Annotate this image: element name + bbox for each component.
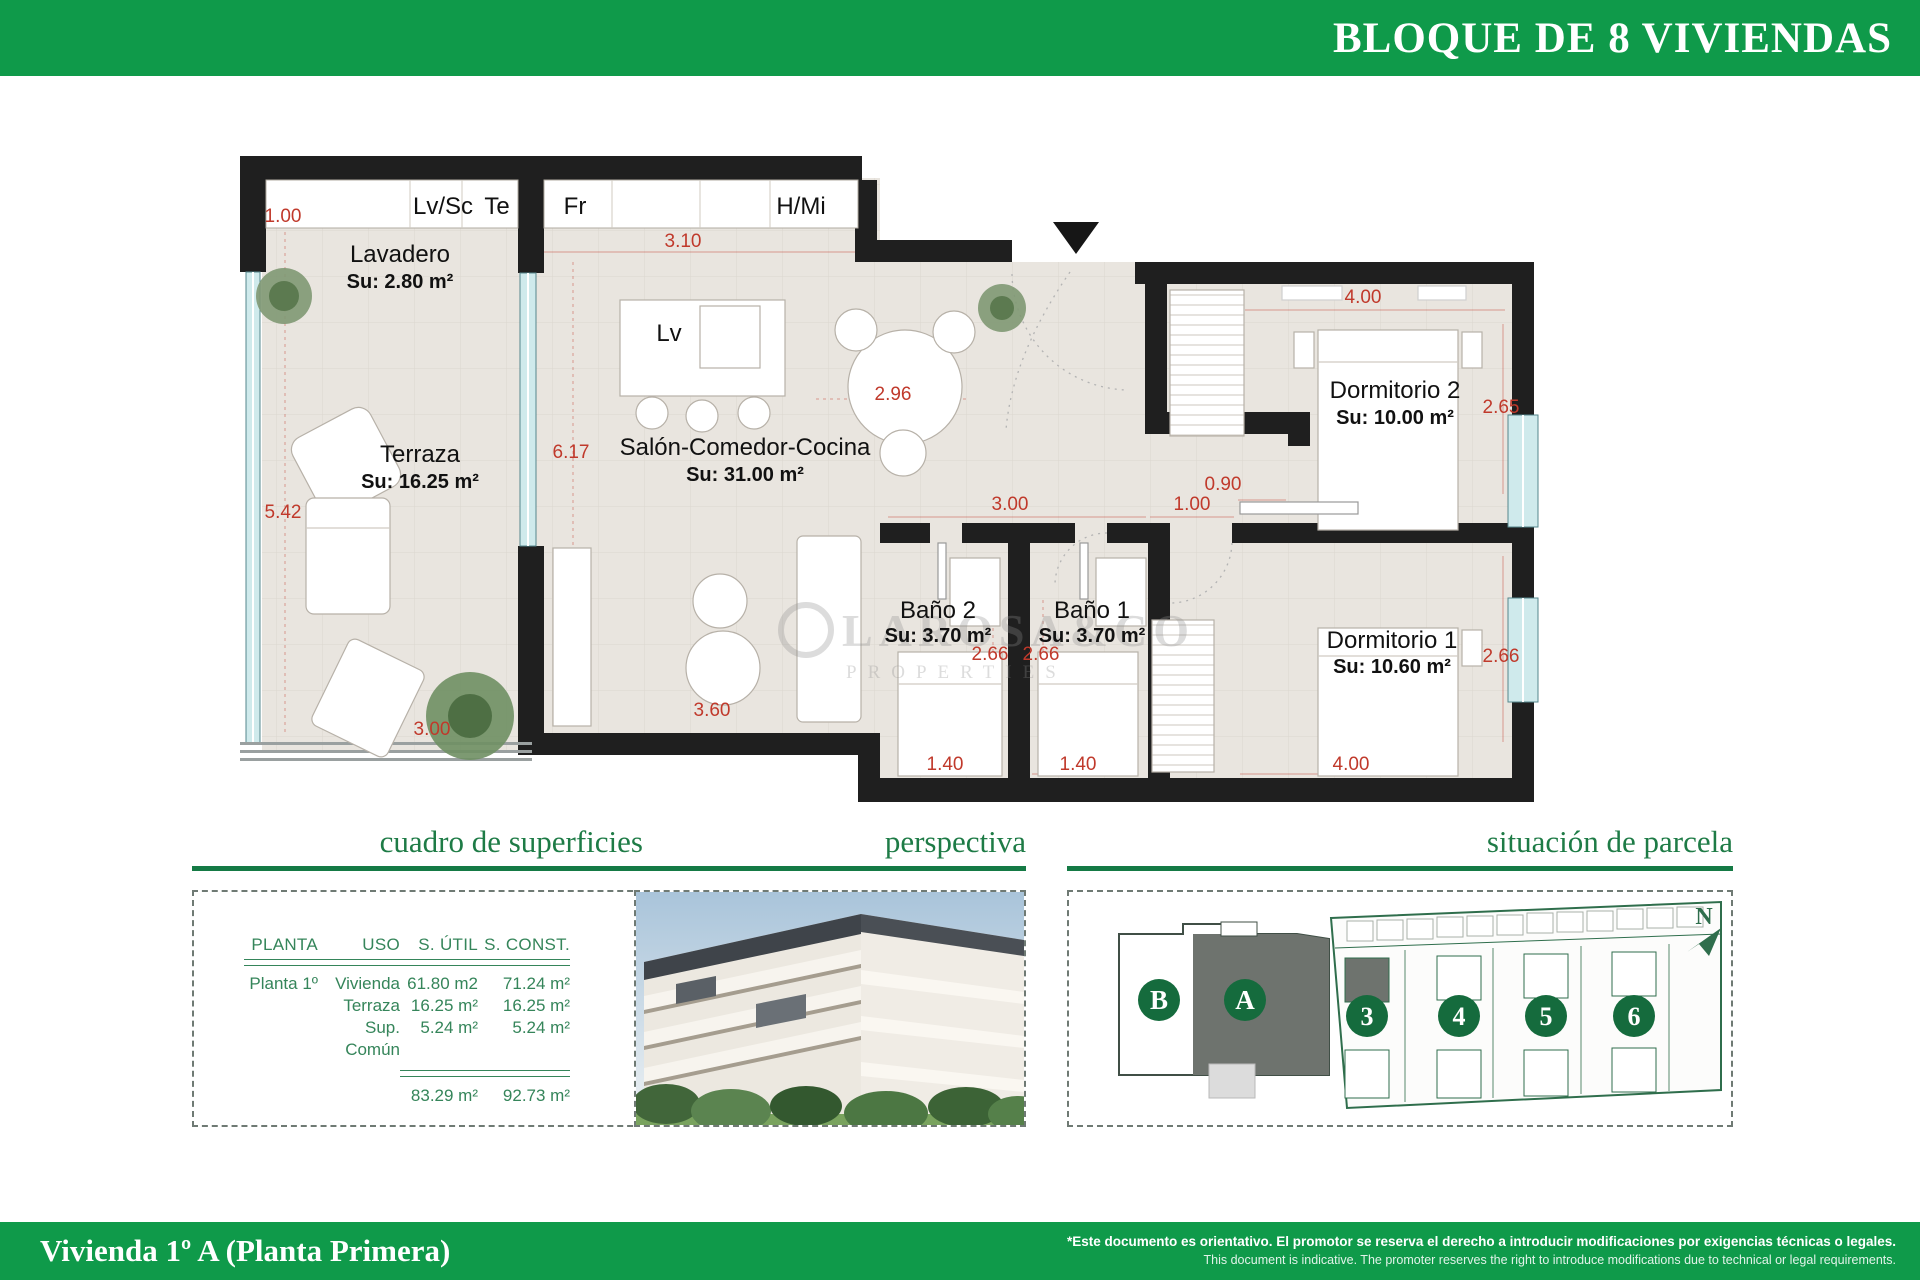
compass-n-label: N bbox=[1695, 904, 1713, 930]
heading-parcela: situación de parcela bbox=[1067, 824, 1733, 862]
plan-sheet: BLOQUE DE 8 VIVIENDAS bbox=[0, 0, 1920, 1280]
dim-label: 4.00 bbox=[1333, 754, 1370, 775]
dim-label: 2.66 bbox=[1023, 644, 1060, 665]
plot-label: 4 bbox=[1453, 1002, 1466, 1031]
fixture-label: H/Mi bbox=[776, 193, 825, 220]
fixture-label: Lv bbox=[656, 320, 681, 347]
dim-label: 3.60 bbox=[694, 700, 731, 721]
room-name-label: Baño 1 bbox=[1054, 597, 1130, 624]
heading-superficies: cuadro de superficies bbox=[192, 824, 643, 862]
surface-table: PLANTA USO S. ÚTIL S. CONST. Planta 1º V… bbox=[244, 934, 641, 1107]
dim-label: 1.40 bbox=[1060, 754, 1097, 775]
cell: 71.24 m² bbox=[478, 973, 570, 995]
plot-label: 5 bbox=[1540, 1002, 1553, 1031]
dim-label: 5.42 bbox=[265, 502, 302, 523]
cell: Terraza bbox=[318, 995, 400, 1017]
rule-parcela bbox=[1067, 866, 1733, 871]
room-name-label: Salón-Comedor-Cocina bbox=[620, 434, 871, 461]
room-area-label: Su: 10.60 m² bbox=[1333, 656, 1451, 678]
disclaimer-en: This document is indicative. The promote… bbox=[1067, 1252, 1896, 1270]
disclaimer-es: *Este documento es orientativo. El promo… bbox=[1067, 1233, 1896, 1252]
cell: 16.25 m² bbox=[400, 995, 478, 1017]
cell: Vivienda bbox=[318, 973, 400, 995]
dim-label: 1.00 bbox=[1174, 494, 1211, 515]
dim-label: 4.00 bbox=[1345, 287, 1382, 308]
block-a-label: A bbox=[1235, 985, 1255, 1015]
fixture-label: Te bbox=[484, 193, 509, 220]
dim-label: 3.00 bbox=[414, 719, 451, 740]
cell: Sup. Común bbox=[318, 1017, 400, 1061]
room-name-label: Terraza bbox=[380, 441, 461, 468]
heading-perspectiva: perspectiva bbox=[634, 824, 1026, 862]
room-area-label: Su: 16.25 m² bbox=[361, 471, 479, 493]
dwelling-title: Vivienda 1º A (Planta Primera) bbox=[40, 1233, 450, 1269]
room-name-label: Dormitorio 2 bbox=[1330, 377, 1461, 404]
rule-perspectiva bbox=[634, 866, 1026, 871]
panel-perspectiva bbox=[634, 890, 1026, 1127]
total-const: 92.73 m² bbox=[478, 1085, 570, 1107]
plot-label: 3 bbox=[1361, 1002, 1374, 1031]
panel-parcela: B A bbox=[1067, 890, 1733, 1127]
cell bbox=[244, 1017, 318, 1061]
header-rule bbox=[244, 959, 570, 966]
dim-label: 6.17 bbox=[553, 442, 590, 463]
plot-label: 6 bbox=[1628, 1002, 1641, 1031]
perspective-render bbox=[636, 892, 1024, 1125]
dim-label: 1.00 bbox=[265, 206, 302, 227]
panel-superficies: PLANTA USO S. ÚTIL S. CONST. Planta 1º V… bbox=[192, 890, 643, 1127]
fixture-label: Lv/Sc bbox=[413, 193, 473, 220]
dim-label: 1.40 bbox=[927, 754, 964, 775]
cell: Planta 1º bbox=[244, 973, 318, 995]
dim-label: 0.90 bbox=[1205, 474, 1242, 495]
dim-label: 2.96 bbox=[875, 384, 912, 405]
cell: 5.24 m² bbox=[400, 1017, 478, 1061]
col-header: PLANTA bbox=[244, 934, 318, 959]
dim-label: 2.66 bbox=[972, 644, 1009, 665]
room-area-label: Su: 31.00 m² bbox=[686, 464, 804, 486]
entrance-arrow-icon bbox=[1053, 222, 1099, 254]
cell: 61.80 m2 bbox=[400, 973, 478, 995]
cell: 5.24 m² bbox=[478, 1017, 570, 1061]
rule-superficies bbox=[192, 866, 643, 871]
room-name-label: Baño 2 bbox=[900, 597, 976, 624]
dim-label: 2.65 bbox=[1483, 397, 1520, 418]
col-header: S. CONST. bbox=[478, 934, 570, 959]
cell: 16.25 m² bbox=[478, 995, 570, 1017]
watermark-subtext: PROPERTIES bbox=[846, 662, 1067, 683]
col-header: S. ÚTIL bbox=[400, 934, 478, 959]
dim-label: 3.00 bbox=[992, 494, 1029, 515]
floor-plan: LAROSA&CO PROPERTIES Lavadero Su: 2.80 m… bbox=[0, 76, 1920, 824]
top-banner: BLOQUE DE 8 VIVIENDAS bbox=[0, 0, 1920, 76]
totals-rule bbox=[400, 1070, 570, 1077]
counters bbox=[266, 180, 858, 228]
room-name-label: Dormitorio 1 bbox=[1327, 627, 1458, 654]
dim-label: 3.10 bbox=[665, 231, 702, 252]
disclaimer: *Este documento es orientativo. El promo… bbox=[1067, 1233, 1896, 1269]
room-area-label: Su: 2.80 m² bbox=[347, 271, 454, 293]
fixture-label: Fr bbox=[564, 193, 587, 220]
bottom-banner: Vivienda 1º A (Planta Primera) *Este doc… bbox=[0, 1222, 1920, 1280]
cell bbox=[244, 995, 318, 1017]
block-b-label: B bbox=[1150, 985, 1168, 1015]
total-util: 83.29 m² bbox=[400, 1085, 478, 1107]
plot-map: B A bbox=[1069, 892, 1731, 1125]
col-header: USO bbox=[318, 934, 400, 959]
page-title: BLOQUE DE 8 VIVIENDAS bbox=[1333, 14, 1892, 63]
dim-label: 2.66 bbox=[1483, 646, 1520, 667]
room-name-label: Lavadero bbox=[350, 241, 450, 268]
block-annex bbox=[1209, 1064, 1255, 1098]
room-area-label: Su: 10.00 m² bbox=[1336, 407, 1454, 429]
